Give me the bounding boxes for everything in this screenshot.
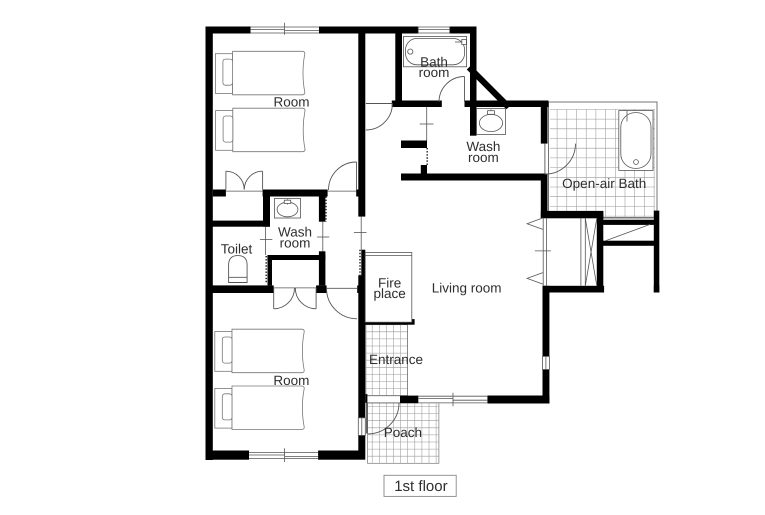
svg-text:room: room <box>419 65 450 80</box>
svg-text:room: room <box>468 150 499 165</box>
svg-text:Entrance: Entrance <box>369 352 423 367</box>
svg-text:Room: Room <box>273 373 309 388</box>
svg-text:Open-air Bath: Open-air Bath <box>562 176 646 191</box>
svg-text:room: room <box>280 236 311 251</box>
svg-text:Living room: Living room <box>432 280 502 295</box>
svg-text:place: place <box>373 286 405 301</box>
svg-text:Poach: Poach <box>384 425 422 440</box>
svg-text:Room: Room <box>273 95 309 110</box>
svg-text:1st floor: 1st floor <box>394 478 447 495</box>
svg-text:Toilet: Toilet <box>221 242 253 257</box>
